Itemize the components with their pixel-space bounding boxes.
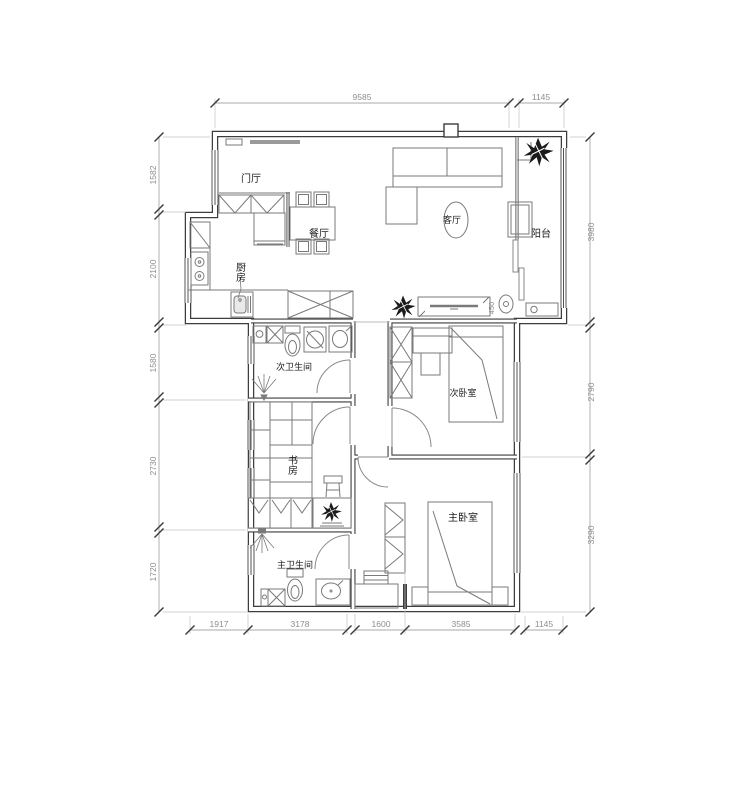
sofa: [386, 148, 502, 224]
room-label-bedroom2: 次卧室: [449, 387, 476, 398]
kitchen-sink: [231, 277, 253, 317]
master-wardrobe: [385, 503, 405, 573]
bedroom2-bed: [449, 326, 503, 422]
dim-top-1: 1145: [532, 92, 551, 102]
hall-cabinet: [288, 291, 353, 318]
dim-left-3: 2730: [148, 456, 158, 475]
top-wall-column: [444, 124, 458, 137]
balcony-trough: [526, 303, 558, 316]
master-dresser: [355, 571, 398, 608]
dim-bottom-4: 1145: [535, 619, 554, 629]
window-bath1-left: [247, 545, 255, 575]
floorplan-drawing: 9585 1145 1582 2100 1580 2730 1720 3980 …: [0, 0, 740, 800]
kitchen-stove: [191, 252, 208, 285]
window-living-right: [560, 148, 568, 308]
vase: [499, 295, 513, 313]
room-label-master-bath: 主卫生间: [277, 559, 313, 570]
door-balcony-slider: [513, 240, 524, 300]
plant-balcony: [524, 138, 554, 167]
room-label-master-bedroom: 主卧室: [448, 511, 478, 524]
dim-right-2: 3290: [586, 525, 596, 544]
furniture: [188, 139, 558, 608]
door-master: [358, 457, 388, 487]
window-master-right: [513, 473, 521, 573]
dim-right-0: 3980: [586, 222, 596, 241]
door-bath1: [315, 535, 349, 569]
windows: [184, 148, 568, 575]
door-bedroom2: [392, 408, 431, 447]
dim-bottom-0: 1917: [210, 619, 229, 629]
dim-tv-width: 450: [487, 302, 496, 315]
dim-top-0: 9585: [353, 92, 372, 102]
balcony-table: [508, 202, 532, 237]
room-label-dining: 餐厅: [309, 227, 329, 240]
room-label-bath2: 次卫生间: [276, 361, 312, 372]
room-label-entry: 门厅: [241, 172, 261, 185]
room-label-balcony: 阳台: [531, 227, 551, 240]
dim-left-1: 2100: [148, 259, 158, 278]
entry-doormat: [226, 139, 300, 145]
window-study-left-b: [247, 468, 255, 498]
window-study-left-a: [247, 420, 255, 450]
room-label-study: 书房: [286, 455, 298, 476]
floorplan-page: 9585 1145 1582 2100 1580 2730 1720 3980 …: [0, 0, 740, 800]
dim-left-0: 1582: [148, 165, 158, 184]
dim-bottom-3: 3585: [452, 619, 471, 629]
study-stool: [324, 476, 342, 497]
dim-left-2: 1580: [148, 353, 158, 372]
dim-left-4: 1720: [148, 562, 158, 581]
room-label-living: 客厅: [443, 214, 461, 225]
dimension-ticks: [155, 99, 595, 635]
plant-study: [321, 502, 342, 522]
study-cabinet: [248, 498, 312, 528]
window-bath2-left: [247, 336, 255, 364]
dim-right-1: 2790: [586, 382, 596, 401]
shoe-cabinet: [219, 195, 285, 245]
bedroom2-wardrobe: [390, 327, 412, 398]
study-tatami: [250, 402, 312, 498]
dim-bottom-1: 3178: [291, 619, 310, 629]
dim-bottom-2: 1600: [372, 619, 391, 629]
bedroom2-desk: [413, 328, 452, 375]
door-study: [313, 407, 350, 444]
door-bath2: [317, 360, 350, 393]
window-bedroom2-right: [513, 362, 521, 442]
dimension-lines: [159, 99, 590, 634]
dining-table: [290, 192, 335, 254]
room-label-kitchen: 厨房: [234, 262, 246, 283]
plant-living: [391, 295, 415, 318]
tv-cabinet: [418, 297, 490, 317]
window-entry-left: [211, 150, 219, 205]
